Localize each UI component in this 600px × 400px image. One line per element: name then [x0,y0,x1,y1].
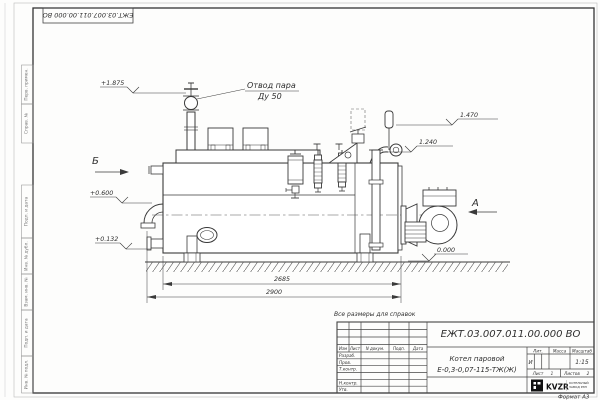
steam-outlet-label: Отвод пара Ду 50 [197,81,299,101]
lifting-ring [390,144,402,156]
label-steam-outlet: Отвод пара [247,81,296,90]
title-block: Изм Лист N докум. Подп. Дата Разраб. Про… [337,322,594,393]
hatch-box [243,128,268,150]
sight-glass [314,160,322,183]
row-prov: Пров. [339,360,351,365]
sheet-number: 1 [551,371,554,376]
col-izm: Изм [339,346,347,351]
doc-number-rotated: ЕЖТ.03.007.011.00.000 ВО [43,11,134,19]
burner-motor [405,222,426,242]
ground-line [145,262,510,272]
margin-label: Справ. № [24,113,30,134]
lit-label: Лит. [532,349,543,354]
col-date: Дата [412,346,424,351]
view-a-label: А [471,198,479,209]
elev-label: +0.132 [95,236,118,243]
burner-control-box [423,190,456,206]
margin-label: Подп. и дата [24,197,30,227]
elev-label: 0.000 [437,247,455,254]
scale-label: Масштаб [572,349,592,354]
format-note: Формат А3 [558,395,590,400]
view-arrow-b: Б [92,156,129,175]
row-tkontr: Т.контр. [339,367,357,372]
elev-label: +1.875 [101,80,124,87]
margin-label: Инв. № подл. [24,360,30,390]
col-list: Лист [349,346,361,351]
dim-2900: 2900 [266,289,282,296]
col-doc: N докум. [366,346,385,351]
logo-sub2: ЗАВОД РЭП [569,385,587,389]
blueprint-svg: Перв. примен. Справ. № Подп. и дата Инв.… [0,0,600,400]
view-b-label: Б [92,156,99,167]
row-utv: Утв. [339,387,348,392]
elev-label: 1.240 [419,139,437,146]
margin-stamps: Перв. примен. Справ. № Подп. и дата Инв.… [22,65,34,393]
elbow-flange [141,223,155,228]
logo-text: KVZR [546,383,569,392]
doc-name-1: Котел паровой [450,355,505,363]
sheets-label: Листов [563,371,580,376]
phantom-outline [351,109,365,130]
margin-label: Перв. примен. [24,68,30,100]
hatch-box [208,128,233,150]
margin-label: Инв. № дубл. [24,241,30,270]
safety-valve-assembly [329,109,402,163]
lever-handle [385,111,393,128]
row-nkontr: Н.контр. [339,381,358,386]
mass-label: Масса [553,349,567,354]
lit-value: И [529,360,533,366]
doc-number: ЕЖТ.03.007.011.00.000 ВО [441,329,581,340]
scale-value: 1:15 [575,359,589,366]
burner [401,187,457,246]
elev-label: +0.600 [90,190,113,197]
margin-label: Взам. инв. № [24,277,30,307]
elev-label: 1.470 [460,112,478,119]
dim-2685: 2685 [274,276,290,283]
sheet-label: Лист [532,371,544,376]
col-sign: Подп. [393,346,405,351]
doc-name-2: Е-0,3-0,07-115-ТЖ(Ж) [437,366,517,374]
reference-note: Все размеры для справок [334,311,416,318]
boiler-drawing: Отвод пара Ду 50 Б А +1.875 1.470 1.240 … [90,80,510,303]
sheets-total: 2 [587,371,590,376]
label-steam-outlet-dn: Ду 50 [257,92,282,101]
company-logo: KVZR КОТЕЛЬНЫЙ ЗАВОД РЭП [531,380,589,392]
top-doc-number-stamp: ЕЖТ.03.007.011.00.000 ВО [43,8,134,23]
view-arrow-a: А [468,198,497,215]
left-fittings [141,166,163,250]
manhole [197,228,217,243]
drawing-sheet: Перв. примен. Справ. № Подп. и дата Инв.… [0,0,600,400]
row-razrab: Разраб. [339,353,355,358]
margin-label: Подп. и дата [24,318,30,348]
